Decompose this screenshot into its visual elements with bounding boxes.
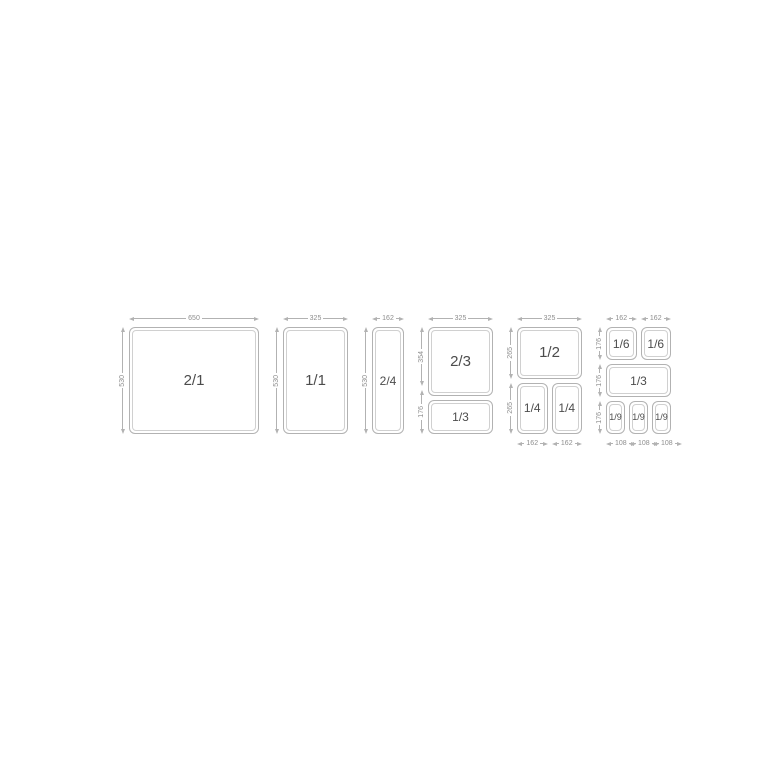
- section-gn-2-3-and-1-3: 3253541762/31/3: [417, 312, 493, 434]
- pan-1-4: 1/4: [552, 383, 583, 435]
- dim-label: 108: [615, 440, 627, 447]
- dimension-line: [599, 369, 600, 373]
- pan-label: 1/4: [558, 402, 575, 414]
- dimension-line: [510, 332, 511, 345]
- dimension-line: [510, 361, 511, 374]
- h-dimension: 162: [552, 440, 583, 447]
- dimension-line: [365, 388, 366, 429]
- section-body: 2652651/21/41/4: [506, 327, 582, 434]
- v-dimension: 176: [595, 364, 604, 397]
- dimension-line: [365, 332, 366, 373]
- dim-arrowhead-down: [420, 429, 424, 434]
- pan-label: 2/3: [450, 354, 471, 369]
- v-dimension: 265: [506, 383, 515, 435]
- pan-grid: 2/1: [129, 327, 259, 434]
- pan-2-3: 2/3: [428, 327, 493, 396]
- pan-row: 1/2: [517, 327, 582, 379]
- dimension-line: [421, 420, 422, 429]
- left-dimension-column: 265265: [506, 327, 515, 434]
- dim-arrowhead-right: [677, 442, 682, 446]
- section-body: 3541762/31/3: [417, 327, 493, 434]
- dimension-line: [522, 318, 542, 319]
- pan-row: 1/61/6: [606, 327, 671, 360]
- dimension-line: [646, 318, 648, 319]
- pan-1-9: 1/9: [652, 401, 671, 434]
- dim-arrowhead-right: [254, 317, 259, 321]
- pan-grid: 1/21/41/4: [517, 327, 582, 434]
- dim-label: 530: [362, 375, 369, 387]
- pan-label: 1/1: [305, 373, 326, 388]
- pan-1-6: 1/6: [641, 327, 672, 360]
- dim-label: 162: [615, 315, 627, 322]
- pan-1-9: 1/9: [606, 401, 625, 434]
- v-dimension: 176: [595, 401, 604, 434]
- h-dimension: 162: [517, 440, 548, 447]
- section-body: 5302/4: [361, 327, 404, 434]
- dim-arrowhead-down: [420, 381, 424, 386]
- dim-label: 265: [507, 347, 514, 359]
- left-dimension-column: 176176176: [595, 327, 604, 434]
- dimension-line: [276, 332, 277, 373]
- h-dimension: 108: [652, 440, 671, 447]
- dim-label: 162: [650, 315, 662, 322]
- dim-arrowhead-down: [509, 429, 513, 434]
- dimension-line: [421, 332, 422, 349]
- dim-arrowhead-right: [343, 317, 348, 321]
- section-body: 5302/1: [118, 327, 259, 434]
- pan-grid: 2/4: [372, 327, 404, 434]
- dimension-line: [276, 388, 277, 429]
- dim-arrowhead-down: [598, 392, 602, 397]
- dim-arrowhead-right: [666, 317, 671, 321]
- h-dimension: 162: [606, 315, 637, 322]
- pan-label: 2/4: [380, 375, 397, 387]
- dim-label: 176: [418, 406, 425, 418]
- v-dimension: 354: [417, 327, 426, 386]
- dimension-line: [599, 406, 600, 410]
- dim-arrowhead-down: [598, 355, 602, 360]
- pan-row: 2/4: [372, 327, 404, 434]
- h-dimension: 325: [517, 315, 582, 322]
- pan-1-2: 1/2: [517, 327, 582, 379]
- pan-label: 1/9: [632, 413, 645, 422]
- dim-label: 176: [596, 412, 603, 424]
- dimension-line: [122, 388, 123, 429]
- dim-arrowhead-right: [577, 317, 582, 321]
- dim-arrowhead-down: [598, 429, 602, 434]
- dim-label: 650: [188, 315, 200, 322]
- pan-1-9: 1/9: [629, 401, 648, 434]
- dim-label: 176: [596, 375, 603, 387]
- pan-row: 2/3: [428, 327, 493, 396]
- pan-label: 1/9: [655, 413, 668, 422]
- pan-label: 1/4: [524, 402, 541, 414]
- dimension-line: [421, 395, 422, 404]
- section-gn-2-4: 1625302/4: [361, 312, 404, 434]
- dimension-line: [134, 318, 186, 319]
- dim-label: 325: [544, 315, 556, 322]
- dimension-line: [557, 318, 577, 319]
- dim-arrowhead-right: [577, 442, 582, 446]
- h-dimension: 650: [129, 315, 259, 322]
- pan-label: 1/6: [647, 338, 664, 350]
- section-gn-1-6-1-3-1-9: 1621621761761761/61/61/31/91/91/91081081…: [595, 312, 671, 450]
- v-dimension: 530: [272, 327, 281, 434]
- dimension-line: [122, 332, 123, 373]
- dimension-line: [510, 416, 511, 429]
- dim-label: 265: [507, 402, 514, 414]
- pan-2-1: 2/1: [129, 327, 259, 434]
- dimension-line: [288, 318, 308, 319]
- dimension-line: [522, 443, 524, 444]
- pan-1-3: 1/3: [428, 400, 493, 434]
- top-dimension-row: 325: [428, 312, 493, 325]
- dimension-line: [634, 443, 636, 444]
- dim-arrowhead-right: [399, 317, 404, 321]
- left-dimension-column: 530: [272, 327, 281, 434]
- v-dimension: 176: [595, 327, 604, 360]
- top-dimension-row: 162: [372, 312, 404, 325]
- h-dimension: 325: [283, 315, 348, 322]
- v-dimension: 530: [118, 327, 127, 434]
- section-body: 5301/1: [272, 327, 348, 434]
- h-dimension: 108: [629, 440, 648, 447]
- dim-label: 530: [273, 375, 280, 387]
- dim-label: 108: [661, 440, 673, 447]
- top-dimension-row: 325: [283, 312, 348, 325]
- top-dimension-row: 162162: [606, 312, 671, 325]
- dimension-line: [323, 318, 343, 319]
- dim-arrowhead-down: [364, 429, 368, 434]
- dim-label: 162: [382, 315, 394, 322]
- left-dimension-column: 530: [118, 327, 127, 434]
- dim-label: 354: [418, 351, 425, 363]
- dimension-line: [468, 318, 488, 319]
- dim-arrowhead-right: [543, 442, 548, 446]
- dimension-line: [611, 318, 613, 319]
- pan-label: 1/3: [630, 375, 647, 387]
- dim-label: 325: [455, 315, 467, 322]
- pan-1-6: 1/6: [606, 327, 637, 360]
- pan-1-3: 1/3: [606, 364, 671, 397]
- section-body: 1761761761/61/61/31/91/91/9: [595, 327, 671, 434]
- pan-1-4: 1/4: [517, 383, 548, 435]
- dimension-line: [433, 318, 453, 319]
- h-dimension: 325: [428, 315, 493, 322]
- left-dimension-column: 530: [361, 327, 370, 434]
- pan-grid: 1/1: [283, 327, 348, 434]
- pan-row: 1/3: [428, 400, 493, 434]
- dimension-line: [421, 364, 422, 381]
- left-dimension-column: 354176: [417, 327, 426, 434]
- pan-label: 1/3: [452, 411, 469, 423]
- pan-label: 1/9: [609, 413, 622, 422]
- pan-row: 2/1: [129, 327, 259, 434]
- top-dimension-row: 650: [129, 312, 259, 325]
- pan-label: 1/6: [613, 338, 630, 350]
- section-gn-1-1: 3255301/1: [272, 312, 348, 434]
- dimension-line: [599, 332, 600, 336]
- pan-grid: 1/61/61/31/91/91/9: [606, 327, 671, 434]
- section-gn-2-1: 6505302/1: [118, 312, 259, 434]
- pan-row: 1/91/91/9: [606, 401, 671, 434]
- v-dimension: 176: [417, 390, 426, 434]
- dimension-line: [202, 318, 254, 319]
- dimension-line: [657, 443, 659, 444]
- pan-1-1: 1/1: [283, 327, 348, 434]
- dim-label: 530: [119, 375, 126, 387]
- top-dimension-row: 325: [517, 312, 582, 325]
- dim-arrowhead-down: [509, 374, 513, 379]
- dim-arrowhead-down: [121, 429, 125, 434]
- dim-arrowhead-right: [488, 317, 493, 321]
- gastronorm-pan-size-diagram: 6505302/13255301/11625302/43253541762/31…: [118, 312, 671, 450]
- dim-arrowhead-right: [632, 317, 637, 321]
- dim-label: 176: [596, 338, 603, 350]
- dimension-line: [611, 443, 613, 444]
- dim-label: 325: [310, 315, 322, 322]
- pan-row: 1/3: [606, 364, 671, 397]
- bottom-dimension-row: 108108108: [606, 437, 671, 450]
- dimension-line: [557, 443, 559, 444]
- pan-row: 1/41/4: [517, 383, 582, 435]
- dim-arrowhead-down: [275, 429, 279, 434]
- h-dimension: 108: [606, 440, 625, 447]
- pan-2-4: 2/4: [372, 327, 404, 434]
- pan-row: 1/1: [283, 327, 348, 434]
- dim-label: 162: [561, 440, 573, 447]
- dimension-line: [510, 388, 511, 401]
- v-dimension: 530: [361, 327, 370, 434]
- section-gn-1-2-and-1-4: 3252652651/21/41/4162162: [506, 312, 582, 450]
- dimension-line: [377, 318, 380, 319]
- pan-grid: 2/31/3: [428, 327, 493, 434]
- h-dimension: 162: [641, 315, 672, 322]
- dim-label: 162: [526, 440, 538, 447]
- h-dimension: 162: [372, 315, 404, 322]
- dim-label: 108: [638, 440, 650, 447]
- pan-label: 2/1: [184, 373, 205, 388]
- bottom-dimension-row: 162162: [517, 437, 582, 450]
- pan-label: 1/2: [539, 345, 560, 360]
- v-dimension: 265: [506, 327, 515, 379]
